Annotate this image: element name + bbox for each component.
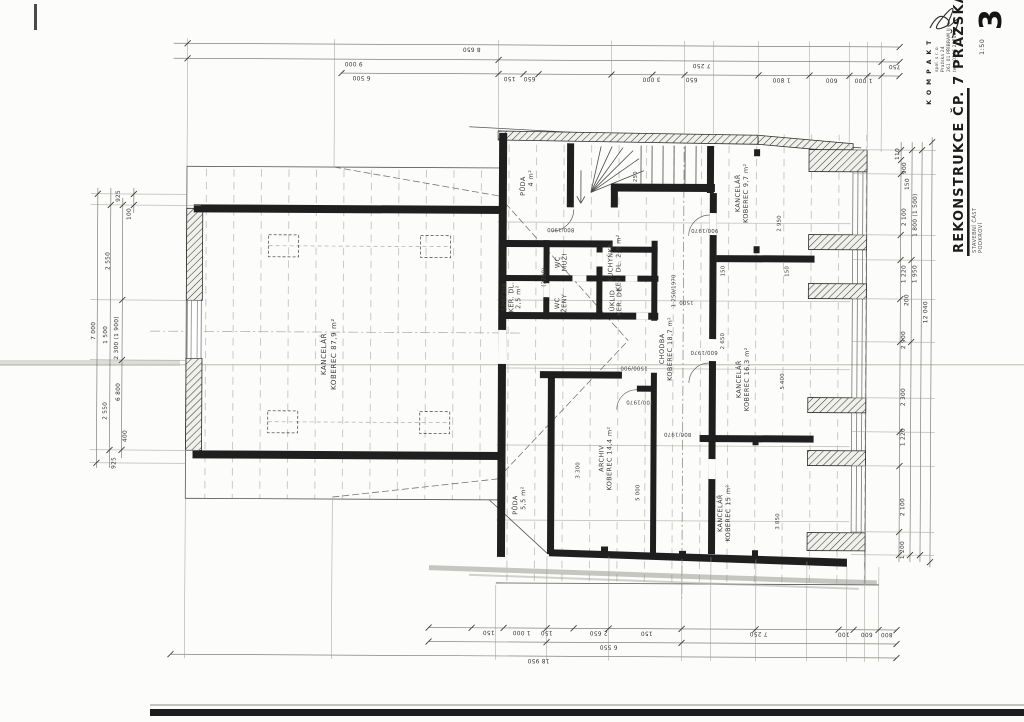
annotation: 800/1900	[547, 226, 575, 232]
annotation: 1 250/1970	[671, 274, 677, 307]
room-label-archiv: ARCHIV	[597, 445, 605, 472]
dim-bottom-value: 100	[838, 631, 850, 637]
dim-top-value: 650	[523, 75, 535, 81]
room-label-wc-zeny-2: ŽENY	[559, 294, 568, 313]
room-label-sprcha-area: 2,5 m²	[514, 285, 522, 309]
drawing-subtitle-1: STAVEBNÍ ČÁST	[971, 207, 978, 253]
dim-left-value: 925	[111, 457, 117, 469]
dim-bottom-value: 2 650	[590, 629, 608, 635]
dim-bottom-value: 18 950	[527, 657, 549, 663]
drawing-title: REKONSTRUKCE ČP. 7 PRAŽSKÁ	[951, 0, 967, 253]
room-label-puda-dolni: PŮDA	[510, 495, 519, 515]
dim-bottom-value: 7 250	[750, 630, 768, 636]
dim-bottom-value: 1 000	[513, 629, 531, 635]
dim-top-value: 600	[825, 77, 837, 83]
stamp-company-name: K O M P A K T	[926, 39, 933, 105]
blueprint-sheet: 8 650 9 000 7 250 6 500 150 650 3 000 65…	[0, 0, 1024, 722]
dim-right-value: 2 900	[901, 331, 907, 349]
dim-top-value: 9 000	[344, 60, 362, 66]
dim-left-value: 925	[116, 190, 122, 202]
title-block: K O M P A K T spol. s r. o. Pražská 24 2…	[926, 0, 1009, 256]
dim-top-value: 150	[503, 75, 515, 81]
dim-left-value: 2 550	[103, 402, 109, 420]
dim-right-value: 150	[905, 178, 911, 190]
dim-right-value: 2 300	[901, 388, 907, 406]
annotation: 3 300	[575, 462, 581, 479]
dim-bottom-value: 800	[881, 631, 893, 637]
title-underline	[967, 88, 970, 256]
annotation: 3 850	[775, 513, 781, 530]
annotation: 150	[784, 266, 790, 277]
room-label-kancelar-15: KANCELÁŘ	[715, 494, 724, 532]
floor-plan-drawing: 8 650 9 000 7 250 6 500 150 650 3 000 65…	[0, 0, 1024, 722]
dim-bottom-value: 6 550	[599, 643, 617, 649]
dim-left-value: 6 800	[116, 383, 122, 401]
annotation: 900/1970	[691, 227, 719, 233]
dim-left-value: 100	[127, 208, 133, 220]
room-label-archiv-area: KOBEREC 14,4 m²	[605, 426, 613, 490]
dim-left-value: 400	[123, 430, 129, 442]
dim-right-value: 1 220	[901, 428, 907, 446]
room-label-kuchynka-finish: KER. DL. 2,8 m²	[614, 234, 622, 291]
dim-right-value: 110	[895, 148, 901, 160]
dim-left-value: 1 500	[103, 326, 109, 344]
room-label-kuchynka: KUCHYŇKA	[605, 243, 614, 282]
annotation: 1500/900	[620, 365, 648, 371]
stamp-company-form: spol. s r. o.	[934, 46, 940, 72]
room-label-kancelar-97: KANCELÁŘ	[733, 174, 742, 212]
dim-right-value: 1 220	[901, 265, 907, 283]
room-label-kancelar-velka-area: KOBEREC 87,9 m²	[330, 318, 338, 390]
drawing-subtitle-2: PODKROVÍ	[977, 222, 984, 253]
annotation: 1500	[679, 299, 694, 305]
annotation: 150	[720, 265, 726, 276]
sheet-number: 3	[974, 9, 1009, 30]
dim-right-value: 1 800 (1 500)	[913, 193, 919, 236]
room-label-puda-dolni-area: 5,5 m²	[519, 486, 527, 510]
room-label-chodba: CHODBA	[658, 333, 666, 364]
sheet-scale: 1:50	[978, 39, 986, 55]
dim-right-value: 200	[904, 294, 910, 306]
stamp-address-street: Pražská 24	[939, 46, 946, 72]
room-label-kancelar-163-area: KOBEREC 16,3 m²	[743, 347, 751, 411]
dim-right-value: 900	[902, 162, 908, 174]
dim-right-value: 2 100	[902, 208, 908, 226]
room-label-kancelar-15-area: KOBEREC 15 m²	[724, 485, 732, 542]
room-label-wc-muzi-2: MUŽI	[559, 253, 568, 271]
annotation: (2200)	[541, 268, 547, 287]
room-label-kancelar-163: KANCELÁŘ	[734, 360, 743, 398]
annotation: 700/1970	[626, 399, 654, 405]
roof-rafter-grid	[149, 131, 868, 602]
room-label-uklid-finish: KER. DL.	[615, 285, 623, 316]
dim-top-value: 3 000	[642, 76, 660, 82]
dim-left-value: 2 300 (1 900)	[114, 316, 120, 359]
room-label-puda-horni: PŮDA	[518, 176, 527, 196]
dim-top-value: 750	[889, 63, 901, 69]
annotation: 5 000	[635, 484, 641, 501]
dimensions-top: 8 650 9 000 7 250 6 500 150 650 3 000 65…	[344, 45, 900, 83]
annotation: 250	[633, 171, 639, 182]
annotation: 800/1970	[664, 431, 692, 437]
dim-top-value: 1 000	[854, 77, 872, 83]
dim-bottom-value: 150	[641, 630, 653, 636]
dim-bottom-value: 150	[541, 629, 553, 635]
dim-right-value: 1 950	[912, 265, 918, 283]
dim-right-value: 1 200	[900, 541, 906, 559]
dim-top-value: 7 250	[692, 62, 710, 68]
annotation: 2 950	[777, 215, 783, 232]
room-label-chodba-area: KOBEREC 18,7 m²	[666, 317, 674, 381]
dim-right-value: 2 100	[900, 498, 906, 516]
dim-left-value: 2 550	[105, 252, 111, 270]
room-label-puda-horni-area: 4 m²	[527, 170, 535, 187]
annotation: 5 400	[780, 373, 786, 390]
dim-right-value: 12 040	[923, 301, 929, 323]
left-wall-window	[187, 300, 201, 358]
dimensions-bottom: 150 1 000 150 2 650 150 7 250 100 600 80…	[482, 629, 892, 665]
dim-left-value: 7 000	[91, 322, 97, 340]
dim-top-value: 6 500	[352, 74, 370, 80]
annotation: 600/1970	[690, 349, 718, 355]
dim-top-value: 8 650	[463, 46, 481, 52]
dim-bottom-value: 150	[483, 629, 495, 635]
dim-bottom-value: 600	[861, 631, 873, 637]
dim-top-value: 650	[685, 76, 697, 82]
annotation: 2 650	[720, 333, 726, 350]
dim-top-value: 1 800	[772, 76, 790, 82]
room-label-kancelar-97-area: KOBEREC 9,7 m²	[742, 163, 750, 223]
room-label-kancelar-velka: KANCELÁŘ	[319, 333, 328, 375]
